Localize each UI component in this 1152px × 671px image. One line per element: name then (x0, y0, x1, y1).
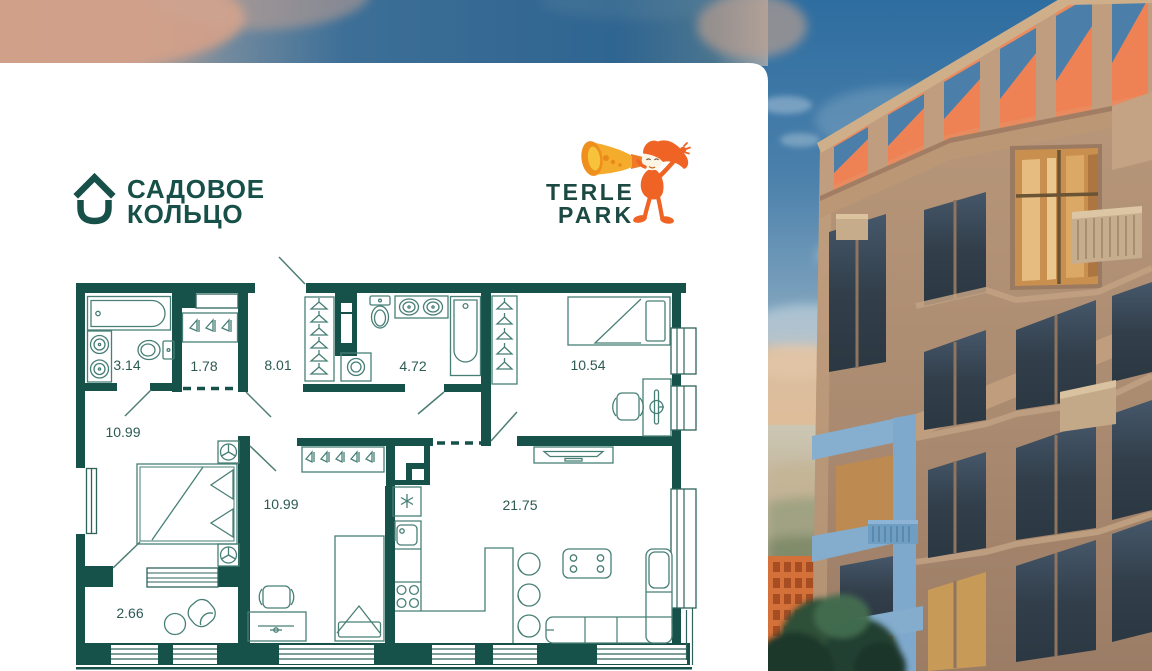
svg-text:21.75: 21.75 (502, 497, 537, 513)
svg-text:10.54: 10.54 (570, 357, 605, 373)
svg-text:4.72: 4.72 (399, 358, 426, 374)
svg-text:PARK: PARK (558, 202, 634, 228)
svg-text:1.78: 1.78 (190, 358, 217, 374)
svg-text:2.66: 2.66 (116, 605, 143, 621)
svg-text:8.01: 8.01 (264, 357, 291, 373)
svg-text:10.99: 10.99 (263, 496, 298, 512)
svg-text:КОЛЬЦО: КОЛЬЦО (127, 199, 243, 229)
svg-text:3.14: 3.14 (113, 357, 140, 373)
svg-text:10.99: 10.99 (105, 424, 140, 440)
